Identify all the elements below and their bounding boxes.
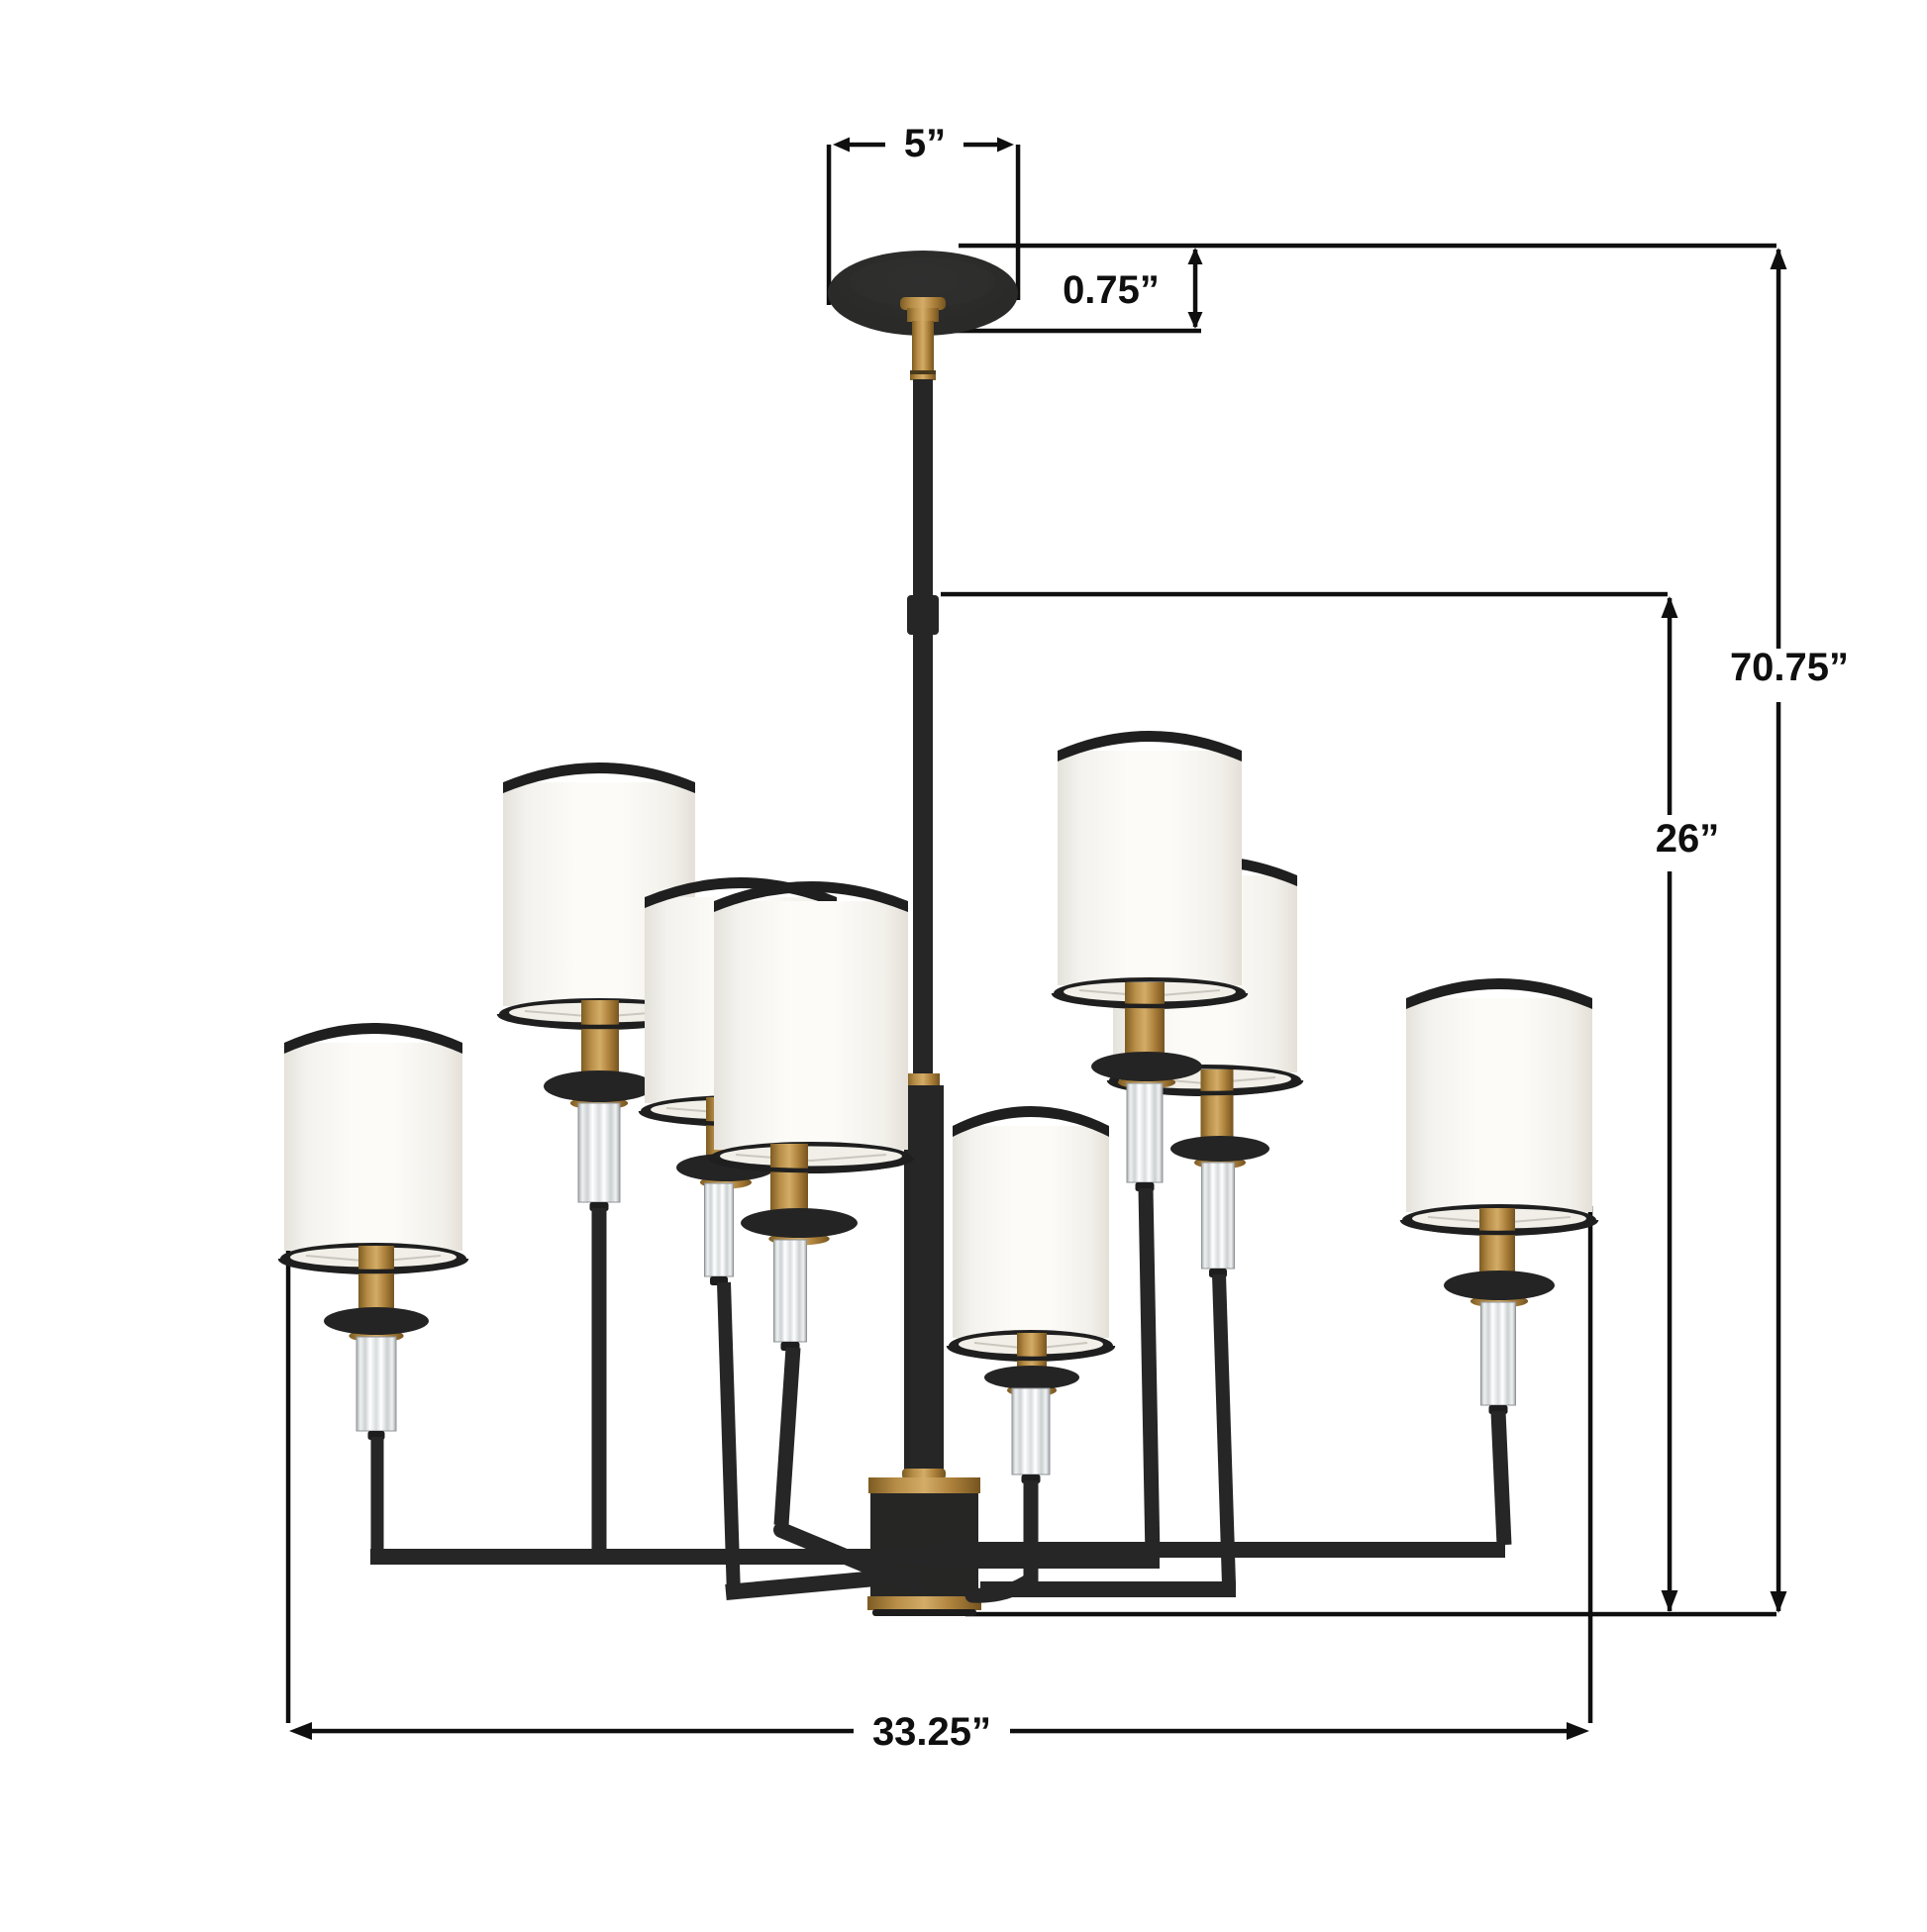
svg-text:33.25”: 33.25” — [872, 1710, 991, 1754]
svg-text:0.75”: 0.75” — [1063, 268, 1160, 312]
svg-text:70.75”: 70.75” — [1730, 646, 1849, 689]
svg-text:5”: 5” — [904, 122, 946, 165]
svg-text:26”: 26” — [1656, 817, 1720, 861]
